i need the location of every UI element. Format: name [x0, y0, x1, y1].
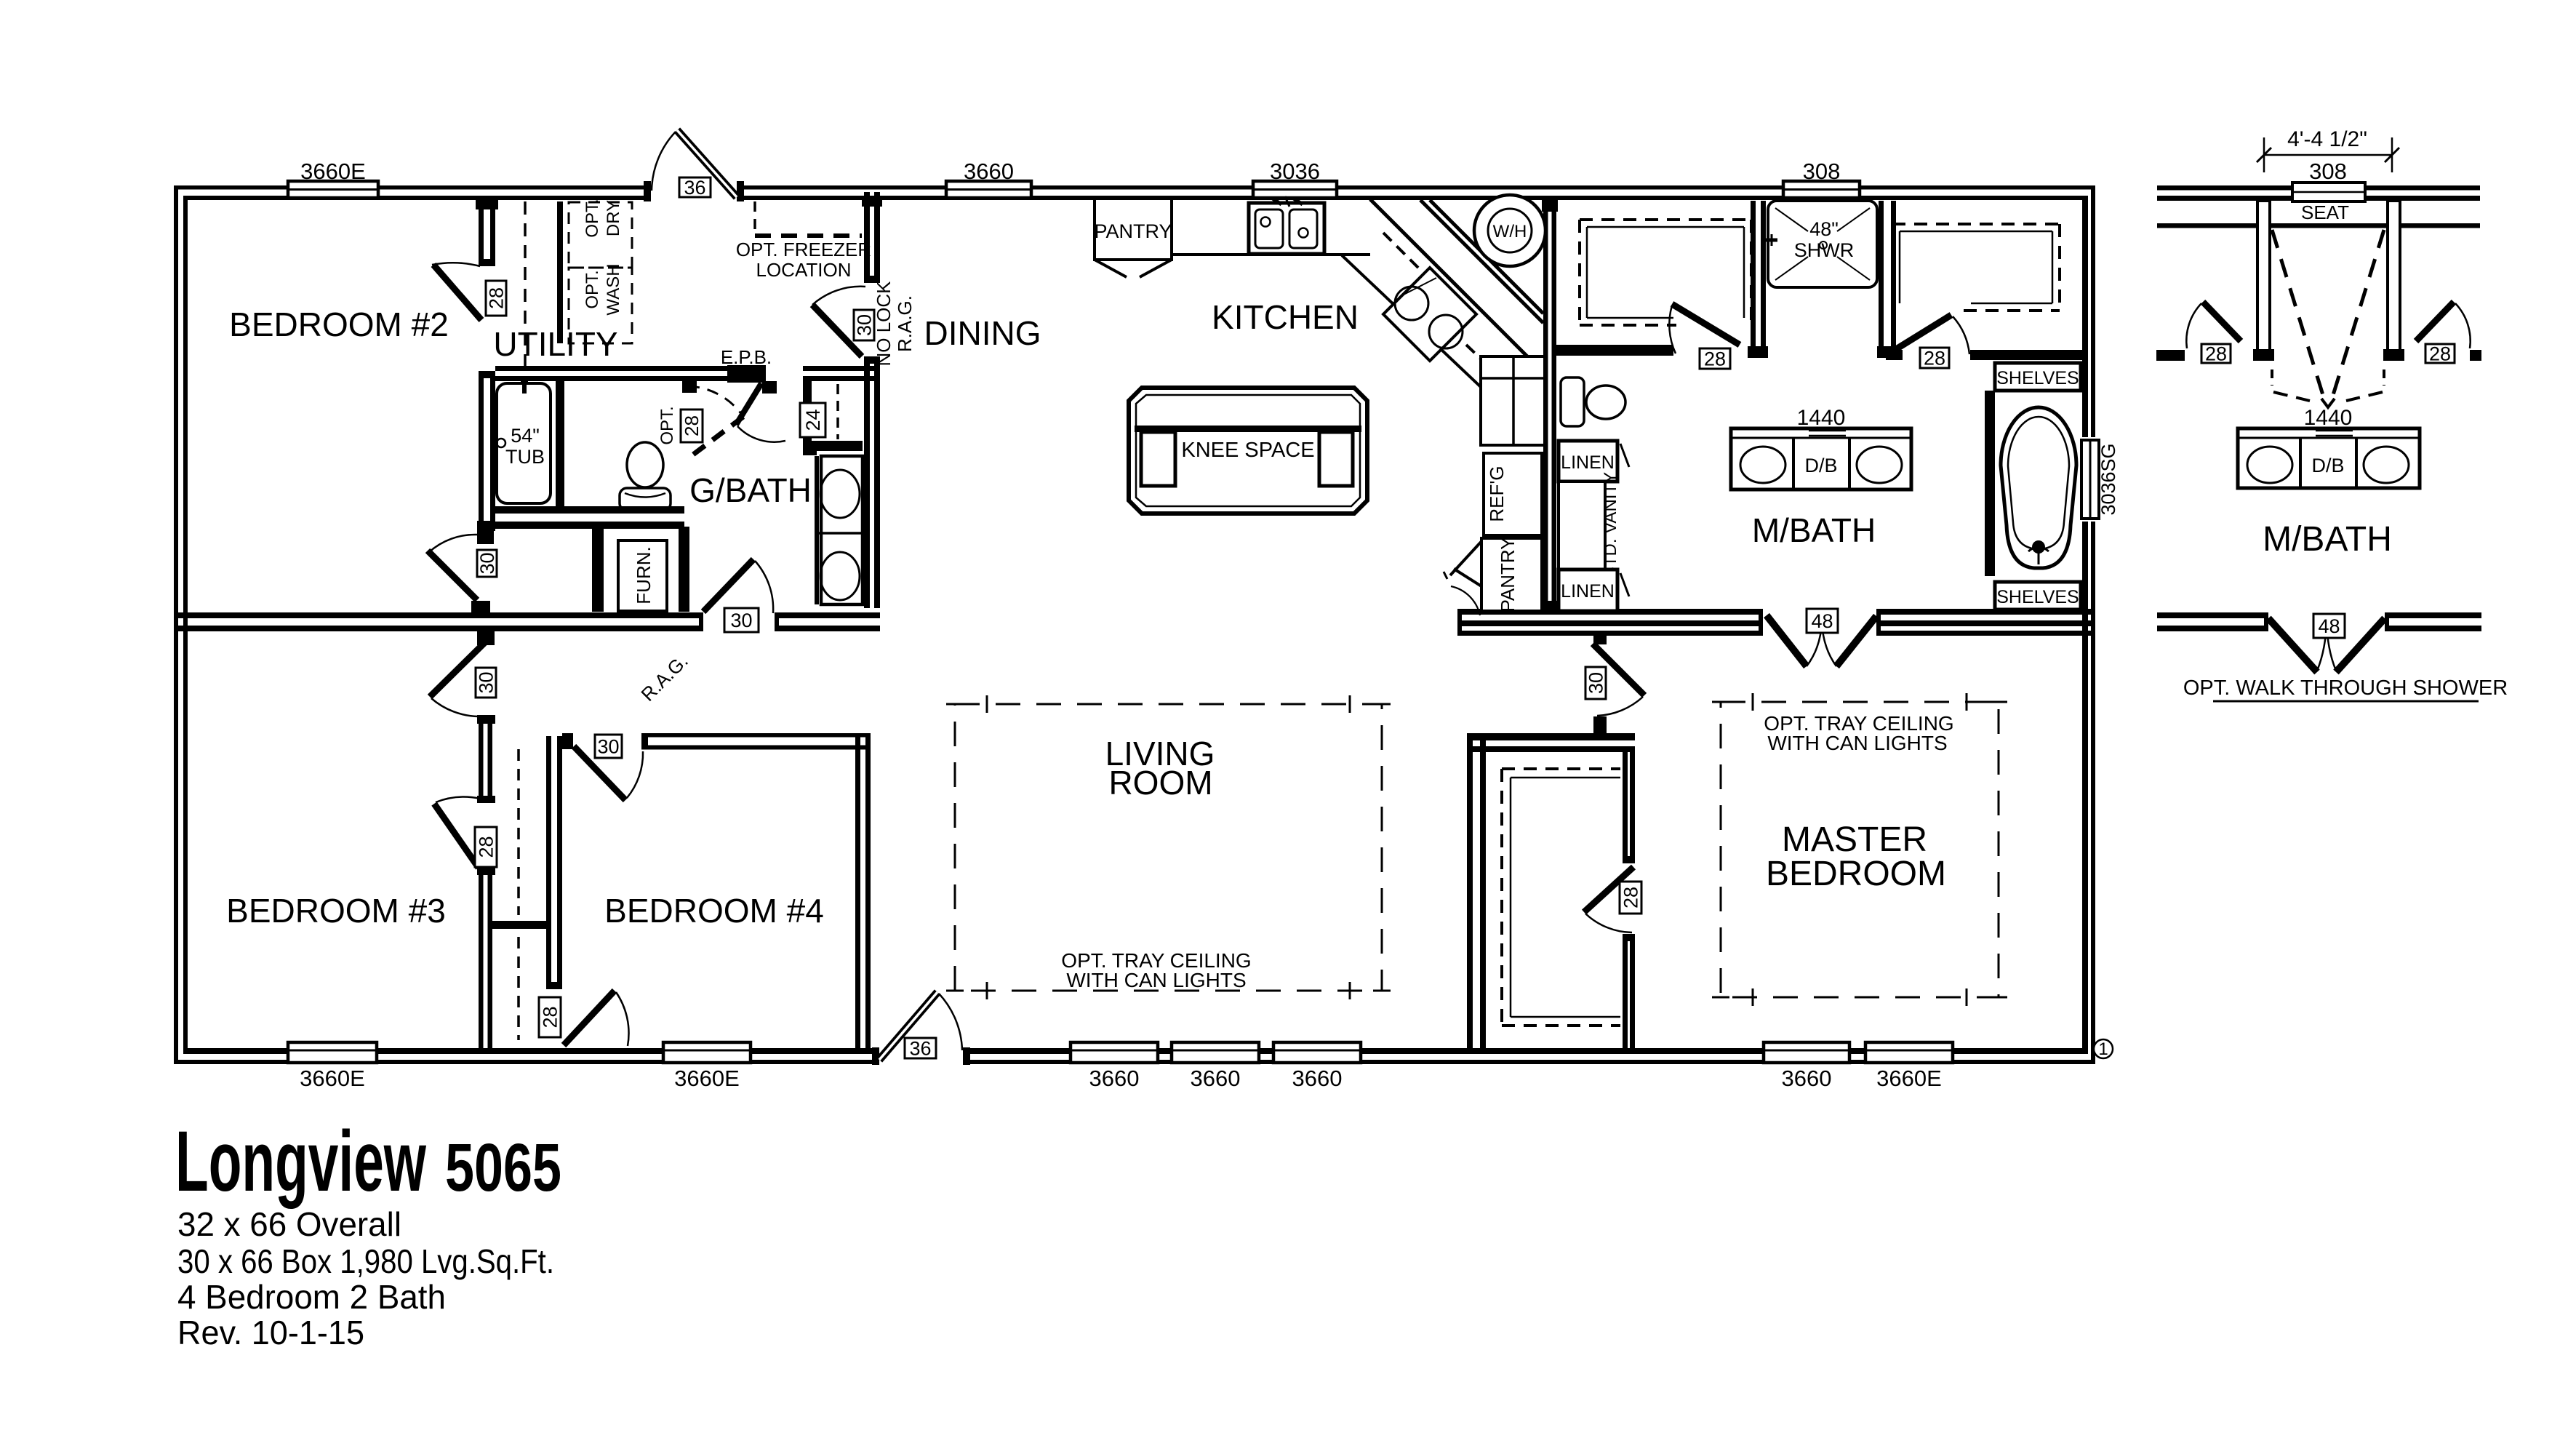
svg-text:30: 30 [476, 552, 498, 574]
svg-text:DRY: DRY [604, 200, 623, 236]
svg-text:28: 28 [681, 415, 703, 436]
svg-text:3660: 3660 [964, 159, 1014, 184]
svg-text:OPT.: OPT. [657, 406, 677, 444]
svg-text:28: 28 [1620, 887, 1641, 908]
svg-text:28: 28 [2429, 343, 2451, 364]
svg-text:UTILITY: UTILITY [493, 325, 617, 363]
svg-text:48: 48 [2318, 615, 2340, 637]
svg-text:36: 36 [684, 177, 705, 199]
svg-text:28: 28 [539, 1006, 561, 1028]
svg-text:SHWR: SHWR [1794, 239, 1855, 261]
svg-text:WITH CAN LIGHTS: WITH CAN LIGHTS [1066, 969, 1246, 991]
svg-text:30: 30 [730, 610, 752, 631]
svg-text:KNEE SPACE: KNEE SPACE [1181, 439, 1314, 462]
svg-text:R.A.G.: R.A.G. [894, 295, 916, 352]
svg-text:30: 30 [597, 735, 619, 757]
svg-text:OPT.: OPT. [583, 199, 602, 237]
svg-text:LINEN: LINEN [1561, 452, 1615, 473]
svg-text:LINEN: LINEN [1561, 581, 1615, 602]
svg-text:ROOM: ROOM [1108, 764, 1212, 802]
svg-text:PANTRY: PANTRY [1497, 537, 1519, 612]
svg-text:FURN.: FURN. [633, 546, 655, 604]
svg-text:TUB: TUB [505, 446, 545, 468]
svg-text:STD. VANITY: STD. VANITY [1601, 472, 1620, 578]
svg-text:32 x 66 Overall: 32 x 66 Overall [177, 1205, 401, 1243]
svg-text:WASH: WASH [604, 263, 623, 315]
svg-text:DINING: DINING [924, 314, 1041, 352]
svg-text:30: 30 [475, 671, 497, 693]
svg-text:308: 308 [1803, 159, 1841, 184]
svg-text:3660: 3660 [1782, 1066, 1832, 1091]
svg-text:1: 1 [2098, 1039, 2108, 1059]
svg-text:48": 48" [1809, 218, 1839, 240]
svg-text:M/BATH: M/BATH [2263, 520, 2392, 559]
svg-text:BEDROOM #3: BEDROOM #3 [226, 892, 446, 930]
svg-text:BEDROOM: BEDROOM [1766, 855, 1946, 893]
svg-text:24: 24 [802, 409, 824, 431]
svg-text:28: 28 [2205, 343, 2227, 364]
svg-text:1440: 1440 [1797, 406, 1846, 430]
svg-text:3660: 3660 [1292, 1066, 1343, 1091]
svg-text:NO LOCK: NO LOCK [873, 281, 895, 367]
svg-text:REF'G: REF'G [1486, 466, 1508, 522]
svg-text:G/BATH: G/BATH [689, 471, 812, 509]
svg-text:54": 54" [511, 425, 540, 447]
svg-text:BEDROOM #4: BEDROOM #4 [604, 892, 824, 930]
svg-text:PANTRY: PANTRY [1094, 220, 1172, 242]
svg-text:D/B: D/B [2311, 455, 2344, 476]
svg-text:36: 36 [909, 1037, 931, 1059]
svg-text:SHELVES: SHELVES [1996, 368, 2079, 388]
svg-text:3660: 3660 [1089, 1066, 1140, 1091]
svg-text:3036SG: 3036SG [2097, 443, 2119, 515]
svg-text:OPT.: OPT. [583, 270, 602, 308]
svg-text:308: 308 [2309, 159, 2347, 184]
svg-text:28: 28 [1704, 348, 1726, 370]
svg-text:SHELVES: SHELVES [1996, 587, 2079, 607]
svg-text:KITCHEN: KITCHEN [1212, 298, 1359, 336]
svg-text:28: 28 [1924, 347, 1945, 369]
svg-text:M/BATH: M/BATH [1752, 511, 1876, 549]
svg-text:E.P.B.: E.P.B. [721, 346, 772, 368]
svg-text:LOCATION: LOCATION [756, 259, 852, 281]
svg-text:OPT. FREEZER: OPT. FREEZER [736, 239, 871, 260]
svg-text:4'-4 1/2": 4'-4 1/2" [2287, 127, 2367, 151]
svg-text:30: 30 [1585, 672, 1607, 694]
svg-text:4 Bedroom 2 Bath: 4 Bedroom 2 Bath [177, 1278, 446, 1316]
svg-text:3660E: 3660E [1876, 1066, 1942, 1091]
svg-text:MASTER: MASTER [1782, 820, 1927, 859]
svg-text:W/H: W/H [1493, 222, 1527, 241]
svg-text:Rev. 10-1-15: Rev. 10-1-15 [177, 1314, 364, 1351]
svg-text:3660: 3660 [1191, 1066, 1241, 1091]
svg-text:28: 28 [475, 836, 497, 858]
svg-text:3036: 3036 [1270, 159, 1320, 184]
svg-text:48: 48 [1811, 610, 1833, 632]
svg-text:BEDROOM #2: BEDROOM #2 [229, 305, 449, 343]
svg-text:3660E: 3660E [300, 1066, 365, 1091]
svg-text:OPT. WALK THROUGH SHOWER: OPT. WALK THROUGH SHOWER [2183, 676, 2508, 700]
svg-text:30: 30 [853, 314, 875, 336]
svg-text:1440: 1440 [2304, 406, 2353, 430]
svg-text:D/B: D/B [1804, 455, 1837, 476]
svg-text:30 x 66 Box 1,980 Lvg.Sq.Ft.: 30 x 66 Box 1,980 Lvg.Sq.Ft. [177, 1242, 554, 1280]
svg-text:3660E: 3660E [300, 159, 366, 184]
svg-text:WITH CAN LIGHTS: WITH CAN LIGHTS [1767, 732, 1947, 754]
svg-text:3660E: 3660E [674, 1066, 740, 1091]
svg-text:SEAT: SEAT [2301, 201, 2349, 223]
svg-text:Longview: Longview [175, 1114, 427, 1210]
svg-text:28: 28 [485, 287, 507, 309]
svg-text:5065: 5065 [445, 1130, 561, 1205]
